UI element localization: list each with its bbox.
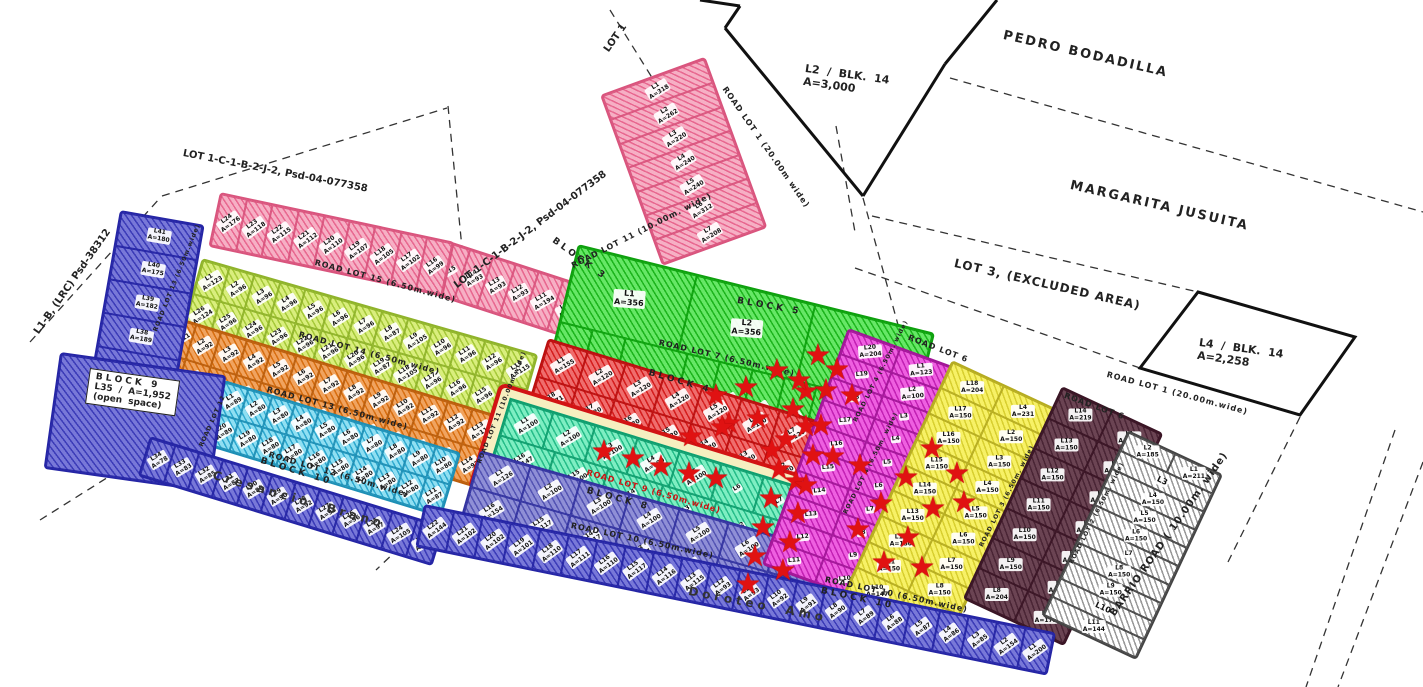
lot-label: L1A=123 bbox=[198, 269, 226, 293]
star-marker: ★ bbox=[893, 463, 920, 493]
lot-label: L24A=105 bbox=[385, 522, 413, 546]
lot-label: L1A=123 bbox=[908, 362, 933, 377]
star-marker: ★ bbox=[703, 464, 730, 494]
lot-label: L5A=96 bbox=[302, 299, 326, 321]
lot-label: L3A=150 bbox=[987, 455, 1011, 468]
lot-label: L9A=80 bbox=[407, 448, 431, 470]
star-marker: ★ bbox=[678, 422, 705, 452]
lot-label: L7A=89 bbox=[852, 605, 876, 628]
lot-label: L15A=117 bbox=[622, 557, 649, 582]
lot-label: L3A=85 bbox=[966, 628, 990, 651]
lot-label: L7 bbox=[1123, 551, 1133, 558]
star-marker: ★ bbox=[745, 404, 772, 434]
lot-label: L6A=88 bbox=[881, 611, 905, 634]
lot-label: L1A=126 bbox=[487, 465, 515, 489]
lot-label: L3A=96 bbox=[250, 285, 274, 307]
lot-label: L19A=101 bbox=[508, 534, 535, 559]
lot-label: L5A=100 bbox=[685, 521, 713, 545]
star-marker: ★ bbox=[951, 488, 978, 518]
lot-label: L5A=87 bbox=[909, 616, 933, 639]
lot-label: L10A=80 bbox=[430, 455, 454, 477]
star-marker: ★ bbox=[895, 523, 922, 553]
lot-label: L11A=87 bbox=[421, 485, 445, 507]
lot-label: L6A=150 bbox=[1124, 529, 1148, 542]
lot-label: L11A=144 bbox=[1082, 620, 1106, 633]
lot-label: L4A=240 bbox=[670, 149, 698, 173]
star-marker: ★ bbox=[871, 548, 898, 578]
star-marker: ★ bbox=[868, 489, 895, 519]
lot-label: L9A=92 bbox=[367, 389, 391, 411]
lot-label: L7A=80 bbox=[360, 433, 384, 455]
star-marker: ★ bbox=[839, 381, 866, 411]
lot-label: L1A=200 bbox=[1022, 638, 1049, 663]
lot-label: L2A=262 bbox=[653, 102, 681, 126]
lot-label: L3A=220 bbox=[661, 125, 689, 149]
lot-label: L22A=144 bbox=[422, 516, 449, 541]
star-marker: ★ bbox=[808, 411, 835, 441]
subdivision-plan-canvas: L1A=318L2A=262L3A=220L4A=240L5A=240L6A=3… bbox=[0, 0, 1423, 687]
star-marker: ★ bbox=[919, 434, 946, 464]
lot-label: L16A=99 bbox=[422, 255, 446, 277]
lot-label: L8A=87 bbox=[378, 321, 402, 343]
star-marker: ★ bbox=[909, 553, 936, 583]
lot-label: L9A=150 bbox=[999, 558, 1023, 571]
lot-label: L11A=96 bbox=[455, 343, 479, 365]
lot-label: L16A=96 bbox=[445, 377, 469, 399]
lot-label: L2A=100 bbox=[900, 386, 925, 401]
lot-label: L20A=102 bbox=[479, 528, 506, 553]
lot-label: L10A=150 bbox=[1013, 528, 1037, 541]
lot-label: L2A=80 bbox=[244, 398, 268, 420]
lot-label: L3 bbox=[899, 413, 910, 420]
star-marker: ★ bbox=[773, 425, 800, 455]
lot-label: L13A=150 bbox=[1054, 438, 1078, 451]
lot-label: L9 bbox=[848, 553, 859, 560]
star-marker: ★ bbox=[620, 444, 647, 474]
star-marker: ★ bbox=[770, 556, 797, 586]
lot-label: L23A=118 bbox=[241, 216, 268, 241]
lot-label: L8A=150 bbox=[928, 583, 952, 596]
lot-label: L6 bbox=[731, 483, 743, 494]
lot-label: L5 bbox=[882, 459, 893, 466]
map-label: PEDRO BODADILLA bbox=[1002, 28, 1170, 81]
lot-label: L11A=92 bbox=[418, 404, 442, 426]
map-label: LOT 3, (EXCLUDED AREA) bbox=[953, 256, 1142, 313]
lot-label: L4A=120 bbox=[664, 388, 692, 412]
lot-label: L33A=83 bbox=[170, 457, 194, 479]
lot-label: L2A=150 bbox=[999, 430, 1023, 443]
star-marker: ★ bbox=[709, 413, 736, 443]
lot-label: L18A=204 bbox=[960, 381, 984, 394]
lot-label: L1A=318 bbox=[644, 78, 672, 102]
lot-label: L3A=120 bbox=[626, 376, 654, 400]
lot-label: L8A=80 bbox=[384, 441, 408, 463]
lot-label: L8A=204 bbox=[985, 588, 1009, 601]
lot-label: L8A=92 bbox=[342, 381, 366, 403]
lot-label: L4A=231 bbox=[1011, 404, 1035, 417]
star-marker: ★ bbox=[648, 452, 675, 482]
map-label: L4 / BLK. 14A=2,258 bbox=[1196, 336, 1284, 374]
lot-label: L10A=92 bbox=[392, 397, 416, 419]
lot-label: L2A=96 bbox=[225, 277, 249, 299]
lot-label: L4A=150 bbox=[975, 481, 999, 494]
road-label: ROAD LOT 1 (20.00m.wide) bbox=[1106, 370, 1249, 416]
lot-label: L17A=111 bbox=[565, 545, 592, 570]
lot-label: L2A=92 bbox=[192, 335, 216, 357]
lot-label: L2A=120 bbox=[588, 364, 616, 388]
lot-label: L21A=112 bbox=[292, 226, 319, 251]
lot-label: L2A=356 bbox=[730, 318, 763, 338]
lot-label: L8A=150 bbox=[1107, 566, 1131, 579]
lot-label: L6A=92 bbox=[292, 366, 316, 388]
lot-label: L15A=96 bbox=[471, 384, 495, 406]
lot-label: L13A=93 bbox=[484, 275, 508, 296]
lot-label: L11A=150 bbox=[1027, 498, 1051, 511]
lot-label: L7A=96 bbox=[353, 314, 377, 336]
map-label: LOT 1-C-1-B-2-J-2, Psd-04-077358 bbox=[182, 148, 369, 195]
lot-label: L5A=92 bbox=[267, 358, 291, 380]
lot-label: L4A=100 bbox=[635, 507, 663, 531]
lot-label: L21A=102 bbox=[451, 522, 478, 547]
lot-label: L41A=180 bbox=[146, 228, 172, 245]
lot-label: L5A=150 bbox=[1133, 511, 1157, 524]
lot-label: L18A=105 bbox=[369, 243, 396, 268]
lot-label: L17A=102 bbox=[395, 248, 422, 273]
lot-label: L4A=150 bbox=[1141, 493, 1165, 506]
lot-label: L3A=92 bbox=[217, 343, 241, 365]
star-marker: ★ bbox=[813, 376, 840, 406]
star-marker: ★ bbox=[676, 459, 703, 489]
lot-label: L19A=80 bbox=[234, 428, 258, 450]
star-marker: ★ bbox=[733, 373, 760, 403]
lot-label: L10A=96 bbox=[430, 336, 454, 358]
lot-label: L6A=80 bbox=[337, 426, 361, 448]
lot-label: L40A=175 bbox=[140, 261, 166, 278]
map-label: MARGARITA JUSUITA bbox=[1069, 178, 1251, 234]
lot-label: L3A=80 bbox=[267, 405, 291, 427]
lot-label: L1A=100 bbox=[513, 412, 541, 436]
lot-label: L38A=189 bbox=[128, 328, 154, 345]
lot-label: L16A=110 bbox=[594, 551, 621, 576]
lot-label: L3 bbox=[1154, 475, 1169, 488]
lot-label: L12A=93 bbox=[507, 283, 531, 304]
lot-label: L39A=182 bbox=[134, 295, 160, 312]
star-marker: ★ bbox=[920, 494, 947, 524]
star-marker: ★ bbox=[735, 570, 762, 600]
lot-label: L11A=194 bbox=[529, 289, 557, 313]
lot-label: L17 bbox=[838, 417, 853, 425]
lot-label: L20A=204 bbox=[858, 344, 883, 359]
lot-label: L24A=176 bbox=[215, 210, 242, 235]
map-label: L2 / BLK. 14A=3,000 bbox=[802, 62, 890, 100]
lot-label: L23A=96 bbox=[266, 326, 290, 348]
lot-label: L7A=92 bbox=[317, 374, 341, 396]
lot-label: L7A=208 bbox=[696, 221, 724, 245]
lot-label: L9A=105 bbox=[402, 328, 430, 352]
lot-label: L4A=92 bbox=[242, 351, 266, 373]
lot-label: L20A=110 bbox=[318, 232, 345, 257]
lot-label: L2A=185 bbox=[1135, 446, 1159, 459]
star-marker: ★ bbox=[780, 395, 807, 425]
lot-label: L4A=86 bbox=[938, 622, 962, 645]
lot-cell-L1: L1A=200 bbox=[1017, 628, 1054, 673]
lot-label: L4 bbox=[890, 436, 901, 443]
lot-label: L18A=110 bbox=[536, 540, 563, 565]
lot-label: L12A=92 bbox=[443, 412, 467, 434]
lot-label: L4A=80 bbox=[290, 412, 314, 434]
lot-label: L14A=219 bbox=[1068, 408, 1092, 421]
lot-label: L19A=107 bbox=[344, 237, 371, 262]
lot-label: L2A=100 bbox=[537, 479, 565, 503]
lot-label: L1A=356 bbox=[613, 289, 646, 309]
lot-label: L17A=150 bbox=[948, 406, 972, 419]
star-marker: ★ bbox=[591, 437, 618, 467]
star-marker: ★ bbox=[847, 451, 874, 481]
lot-label: L22A=115 bbox=[267, 221, 294, 246]
star-marker: ★ bbox=[800, 441, 827, 471]
lot-label: L12A=150 bbox=[1040, 468, 1064, 481]
lot-label: L6A=150 bbox=[951, 532, 975, 545]
lot-label: L12A=96 bbox=[481, 351, 505, 373]
lot-label: L34A=78 bbox=[146, 450, 170, 472]
star-marker: ★ bbox=[845, 515, 872, 545]
lot-label: L6A=96 bbox=[327, 307, 351, 329]
lot-label: L4A=96 bbox=[276, 292, 300, 314]
map-label: LOT 1 bbox=[602, 22, 629, 54]
lot-label: L1A=155 bbox=[549, 353, 577, 377]
lot-label: L7A=150 bbox=[939, 558, 963, 571]
lot-label: L2A=154 bbox=[993, 633, 1020, 658]
lot-label: L2A=100 bbox=[555, 425, 583, 449]
lot-label: L14A=116 bbox=[651, 563, 678, 588]
lot-label: L5A=80 bbox=[314, 419, 338, 441]
